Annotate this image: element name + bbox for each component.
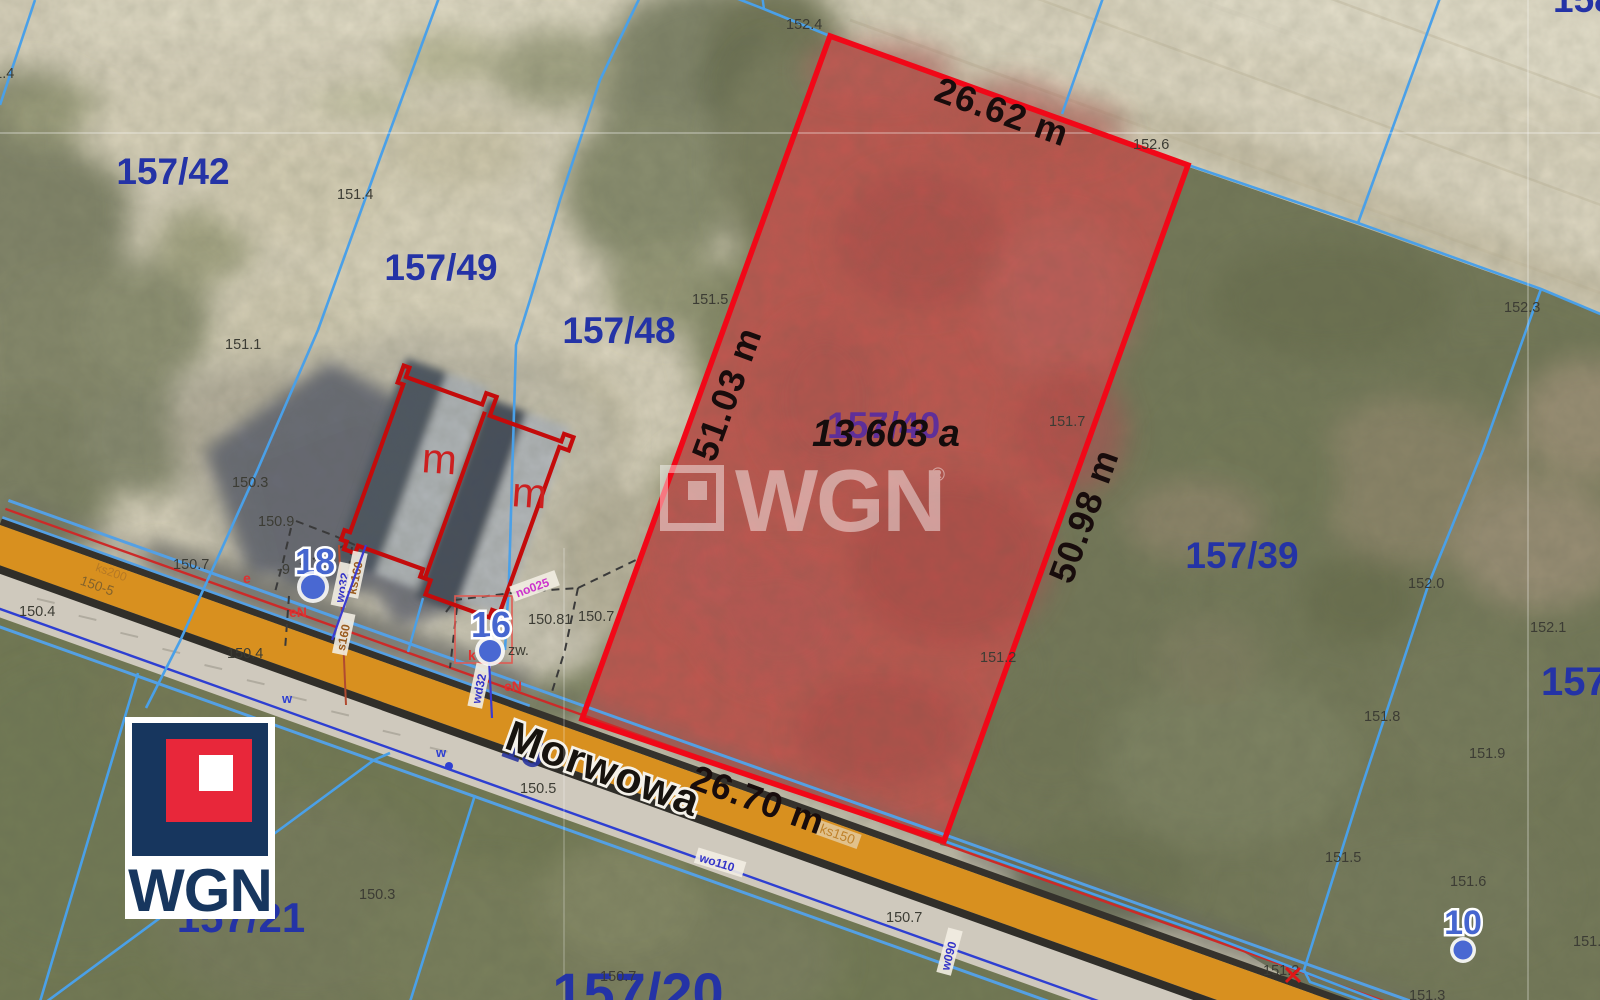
svg-text:150.4: 150.4: [19, 604, 55, 620]
svg-text:zw.: zw.: [508, 643, 529, 659]
svg-text:151.4: 151.4: [0, 66, 14, 82]
svg-text:152.1: 152.1: [1530, 620, 1566, 636]
svg-text:151.8: 151.8: [1364, 709, 1400, 725]
svg-text:151.5: 151.5: [1325, 850, 1361, 866]
svg-text:150.7: 150.7: [600, 969, 636, 985]
svg-text:150.5: 150.5: [520, 781, 556, 797]
svg-text:152.6: 152.6: [1133, 137, 1169, 153]
svg-text:10: 10: [1444, 904, 1482, 942]
svg-text:m: m: [510, 468, 548, 517]
svg-text:151.9: 151.9: [1469, 746, 1505, 762]
svg-text:k: k: [468, 647, 476, 663]
svg-text:150.81: 150.81: [528, 612, 572, 628]
svg-text:150.7: 150.7: [886, 910, 922, 926]
svg-text:150.7: 150.7: [173, 557, 209, 573]
svg-text:-9: -9: [277, 562, 290, 578]
svg-text:151.4: 151.4: [337, 187, 373, 203]
svg-text:151.3: 151.3: [1573, 934, 1600, 950]
svg-text:®: ®: [931, 465, 945, 486]
svg-text:150.9: 150.9: [258, 514, 294, 530]
svg-text:152.3: 152.3: [1504, 300, 1540, 316]
svg-text:w: w: [281, 691, 293, 706]
svg-text:151.3: 151.3: [1409, 988, 1445, 1000]
svg-text:157/48: 157/48: [562, 310, 675, 351]
svg-text:151.5: 151.5: [692, 292, 728, 308]
svg-text:158/1: 158/1: [1553, 0, 1600, 20]
svg-text:150.7: 150.7: [578, 609, 614, 625]
svg-text:152.0: 152.0: [1408, 576, 1444, 592]
svg-text:13.603 a: 13.603 a: [812, 413, 960, 455]
svg-text:157/39: 157/39: [1185, 535, 1298, 576]
svg-text:150.3: 150.3: [359, 887, 395, 903]
svg-text:157/20: 157/20: [552, 961, 723, 1000]
svg-text:w: w: [435, 745, 447, 760]
svg-text:151.1: 151.1: [225, 337, 261, 353]
svg-text:151.7: 151.7: [1049, 414, 1085, 430]
svg-text:150.4: 150.4: [227, 646, 263, 662]
svg-text:150.3: 150.3: [232, 475, 268, 491]
svg-text:152.4: 152.4: [786, 17, 822, 33]
svg-text:157/49: 157/49: [384, 247, 497, 288]
svg-text:m: m: [420, 434, 458, 483]
svg-text:151.2: 151.2: [980, 650, 1016, 666]
svg-text:157/42: 157/42: [116, 151, 229, 192]
svg-text:eN: eN: [504, 678, 522, 694]
svg-text:157/: 157/: [1541, 660, 1600, 704]
svg-text:151.6: 151.6: [1450, 874, 1486, 890]
svg-text:eN: eN: [289, 604, 307, 620]
svg-text:e: e: [243, 570, 251, 586]
svg-text:WGN: WGN: [128, 857, 272, 924]
svg-text:WGN: WGN: [735, 451, 944, 550]
